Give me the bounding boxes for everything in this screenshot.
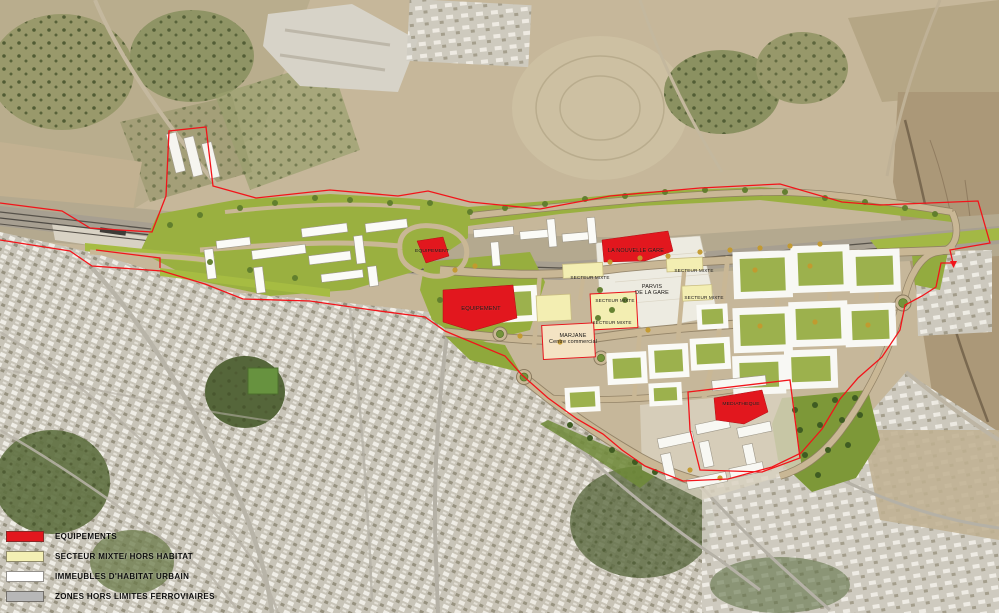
label-secteur-mixte-2: SECTEUR MIXTE [674,268,713,273]
legend-swatch-immeubles-habitat [6,571,44,582]
legend-swatch-zones-hors-limites [6,591,44,602]
legend-item-secteur-mixte: SECTEUR MIXTE/ HORS HABITAT [6,550,215,562]
label-marjane-line2: Centre commercial [549,339,597,345]
legend-label-immeubles-habitat: IMMEUBLES D'HABITAT URBAIN [55,572,189,581]
masterplan-page: EQUIPEMENT LA NOUVELLE GARE SECTEUR MIXT… [0,0,999,613]
legend-item-zones-hors-limites: ZONES HORS LIMITES FERROVIAIRES [6,590,215,602]
legend-item-immeubles-habitat: IMMEUBLES D'HABITAT URBAIN [6,570,215,582]
legend-swatch-equipements [6,531,44,542]
label-secteur-mixte-5: SECTEUR MIXTE [592,320,631,325]
label-equipement: EQUIPEMENT [461,306,501,312]
legend-label-secteur-mixte: SECTEUR MIXTE/ HORS HABITAT [55,552,193,561]
label-parvis-line2: DE LA GARE [635,290,669,296]
label-equipement-nord: EQUIPEMENT [415,248,449,254]
label-mediatheque: MEDIATHEQUE [722,401,759,407]
secteur-mixte-block [536,294,571,322]
legend-item-equipements: EQUIPEMENTS [6,530,215,542]
legend-label-equipements: EQUIPEMENTS [55,532,117,541]
label-marjane: MARJANE Centre commercial [549,333,597,345]
legend: EQUIPEMENTS SECTEUR MIXTE/ HORS HABITAT … [6,530,215,610]
label-secteur-mixte-3: SECTEUR MIXTE [595,298,634,303]
label-secteur-mixte-4: SECTEUR MIXTE [684,295,723,300]
label-secteur-mixte-1: SECTEUR MIXTE [570,275,609,280]
label-nouvelle-gare: LA NOUVELLE GARE [608,248,664,254]
legend-label-zones-hors-limites: ZONES HORS LIMITES FERROVIAIRES [55,592,215,601]
label-parvis-de-la-gare: PARVIS DE LA GARE [635,284,669,296]
legend-swatch-secteur-mixte [6,551,44,562]
